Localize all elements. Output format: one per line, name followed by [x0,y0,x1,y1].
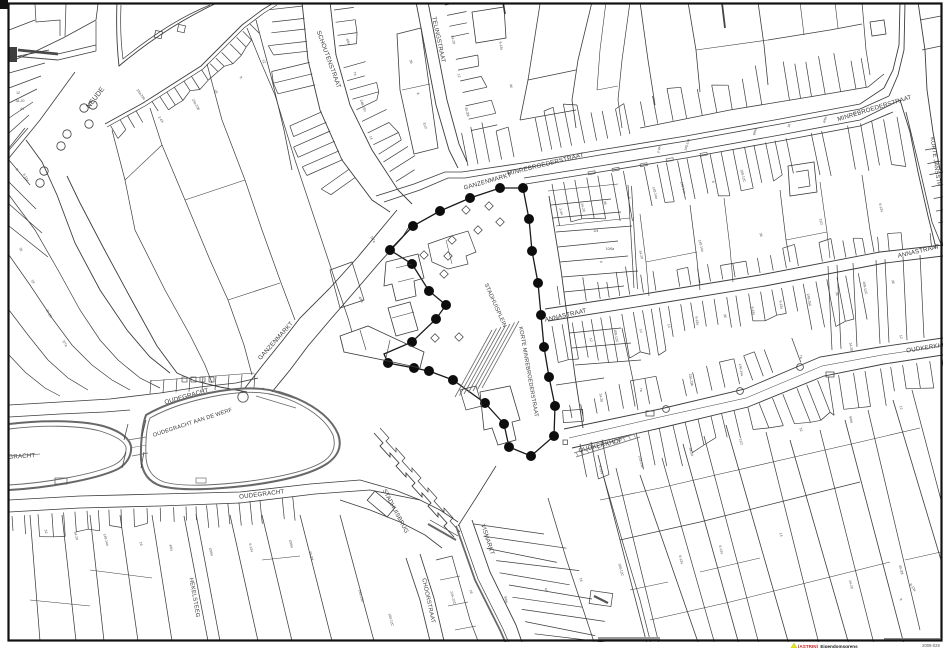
svg-text:10/6a: 10/6a [606,247,615,251]
svg-text:Eigendomsgrens: Eigendomsgrens [820,644,858,648]
svg-text:44: 44 [20,107,24,111]
svg-text:12: 12 [16,91,20,95]
svg-text:(ASTRIN): (ASTRIN) [798,644,819,648]
svg-text:2008-028: 2008-028 [922,643,940,648]
svg-text:34-20: 34-20 [16,99,25,103]
svg-text:2/4: 2/4 [594,229,599,233]
